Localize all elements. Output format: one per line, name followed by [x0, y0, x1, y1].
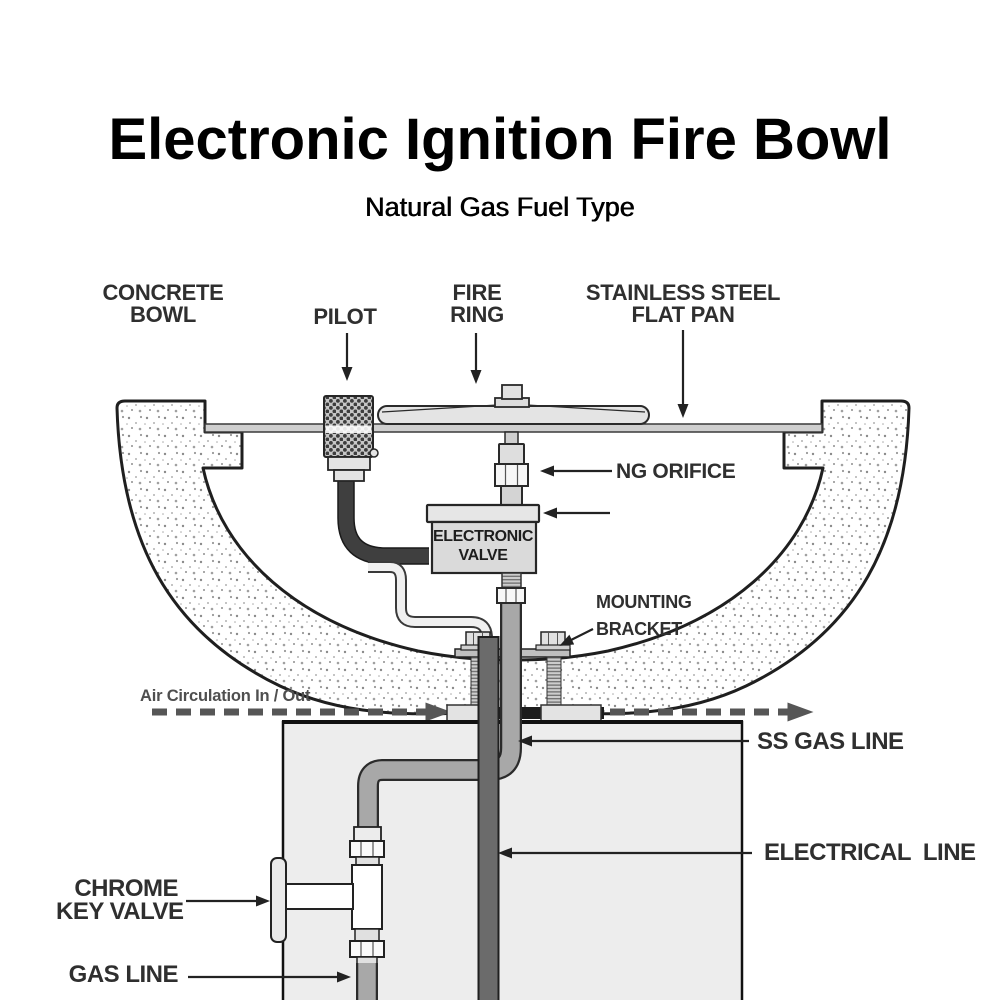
pilot-assembly [324, 396, 378, 481]
label-ss-gas-line: SS GAS LINE [757, 728, 904, 756]
label-electrical-line: ELECTRICAL LINE [764, 839, 976, 867]
flat-pan [205, 424, 822, 432]
label-gas-line: GAS LINE [56, 961, 178, 989]
page-subtitle: Natural Gas Fuel Type [365, 192, 635, 223]
fire-ring [378, 385, 649, 424]
pilot-nub [370, 449, 378, 457]
label-ng-orifice: NG ORIFICE [616, 460, 736, 484]
pilot-collar-lower [334, 470, 364, 481]
label-stainless-steel-flat-pan: STAINLESS STEELFLAT PAN [586, 282, 780, 326]
key-valve-flange [271, 858, 286, 942]
key-valve-stem [286, 884, 353, 909]
label-chrome-key-valve: CHROMEKEY VALVE [56, 877, 178, 923]
label-pilot: PILOT [313, 304, 376, 330]
label-concrete-bowl: CONCRETEBOWL [102, 282, 223, 326]
electrical-line-pipe [479, 637, 499, 1000]
fire-ring-hub-cap [502, 385, 522, 399]
label-fire-ring: FIRERING [450, 282, 504, 326]
pilot-collar-upper [328, 457, 370, 470]
foot-pad-right [541, 705, 601, 722]
ng-orifice-fitting [495, 464, 528, 486]
fire-bowl-diagram-page: Electronic Ignition Fire Bowl Natural Ga… [0, 0, 1000, 1000]
mounting-bracket-arrow [571, 629, 593, 640]
burner-stem-assembly [495, 432, 528, 507]
label-electronic-valve: ELECTRONICVALVE [433, 527, 533, 565]
page-title: Electronic Ignition Fire Bowl [108, 111, 891, 169]
pilot-gas-tube [346, 470, 429, 556]
label-mounting-bracket: MOUNTINGBRACKET [596, 589, 692, 643]
key-valve-body [352, 865, 382, 929]
label-air-circulation: Air Circulation In / Out [140, 687, 310, 706]
valve-outlet-fittings [497, 573, 525, 603]
